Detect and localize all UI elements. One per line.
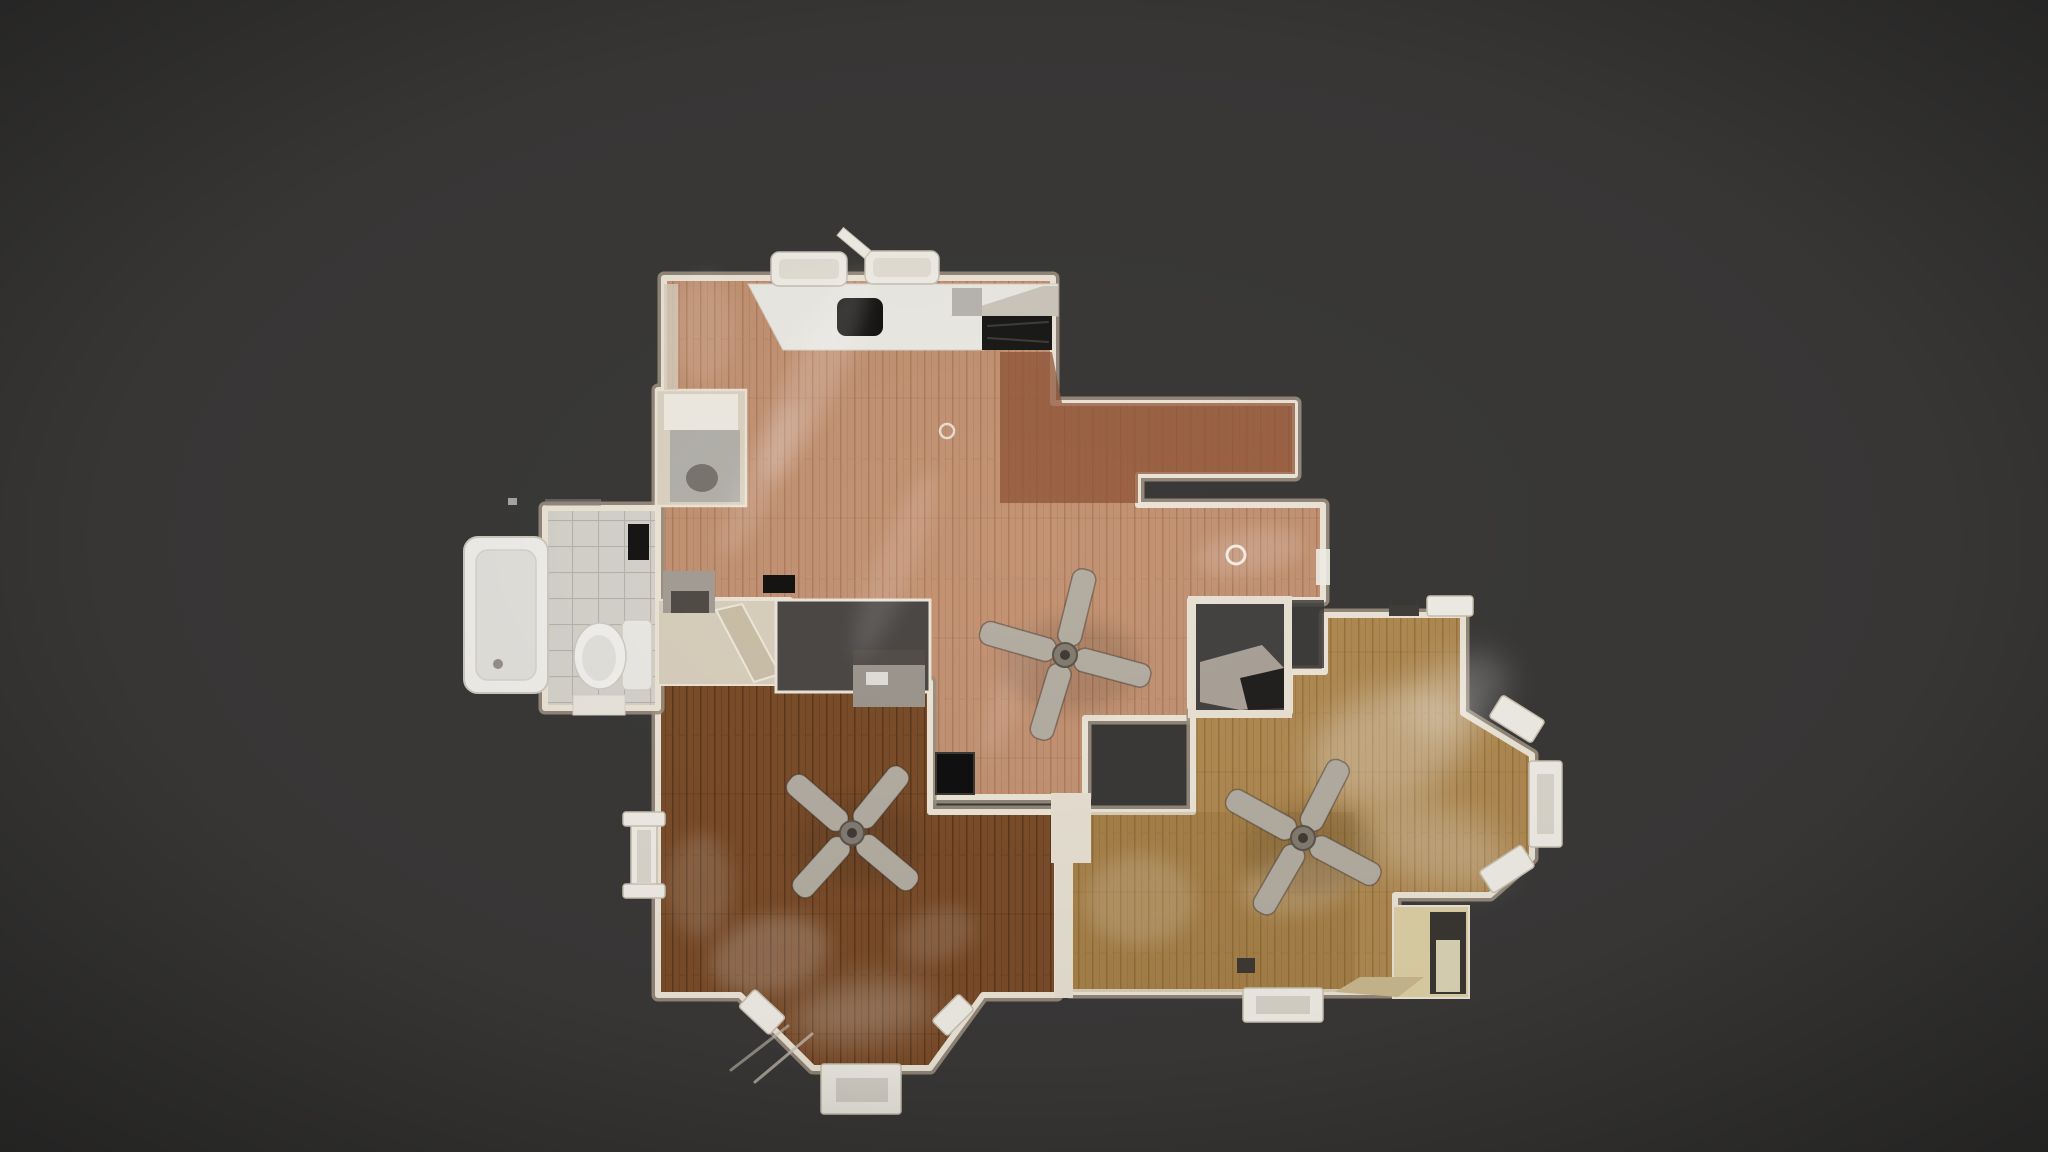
doorway-connector-wall	[1051, 793, 1091, 863]
bay-window-right-large-glass	[1537, 774, 1554, 834]
counter-stool-cushion	[873, 258, 931, 277]
entry-alcove-lit-floor	[1436, 940, 1460, 992]
bathroom-threshold	[573, 695, 625, 715]
doorway-top-protrusion	[1389, 605, 1419, 616]
floor-reflection	[668, 833, 732, 937]
counter-stool-cushion	[779, 259, 839, 279]
ceiling-fan-central-hub-center	[1060, 650, 1070, 660]
bathroom-mirror	[628, 524, 649, 560]
window-left-flange	[623, 884, 665, 898]
hall-appliance-front	[671, 591, 709, 613]
bathtub-basin	[476, 550, 536, 680]
toilet-seat	[582, 635, 616, 681]
floor-vent	[763, 575, 795, 593]
floorplan-layers	[0, 0, 2048, 1152]
bathroom-edge-artifact	[545, 499, 601, 506]
ceiling-fan-bottom-left-hub-center	[847, 828, 857, 838]
window-bottom-right-glass	[1256, 996, 1310, 1014]
hall-desk-paper	[866, 672, 888, 685]
window-left-flange	[623, 812, 665, 826]
kitchen-stove-cooktop	[982, 316, 1052, 350]
floor-reflection	[1085, 855, 1195, 945]
bay-window-bottom-glass	[836, 1078, 888, 1102]
floorplan-canvas[interactable]	[0, 0, 2048, 1152]
window-left-glass	[637, 830, 651, 884]
floorplan-viewer[interactable]	[0, 0, 2048, 1152]
window-top-protrusion	[1427, 596, 1473, 616]
stairwell-open-gap	[1292, 600, 1324, 668]
ceiling-fan-right-hub-center	[1298, 833, 1308, 843]
fridge-nook-counter	[664, 394, 738, 430]
floor-reflection	[675, 275, 735, 385]
lower-arm-doorframe	[1316, 549, 1330, 585]
fridge-nook-shadow	[686, 464, 718, 492]
bathtub-drain	[493, 659, 503, 669]
bathroom-edge-artifact	[508, 498, 517, 505]
floor-vent	[1237, 958, 1255, 973]
kitchen-counter-gray-box	[952, 288, 982, 316]
floor-vent-corner	[936, 753, 974, 794]
